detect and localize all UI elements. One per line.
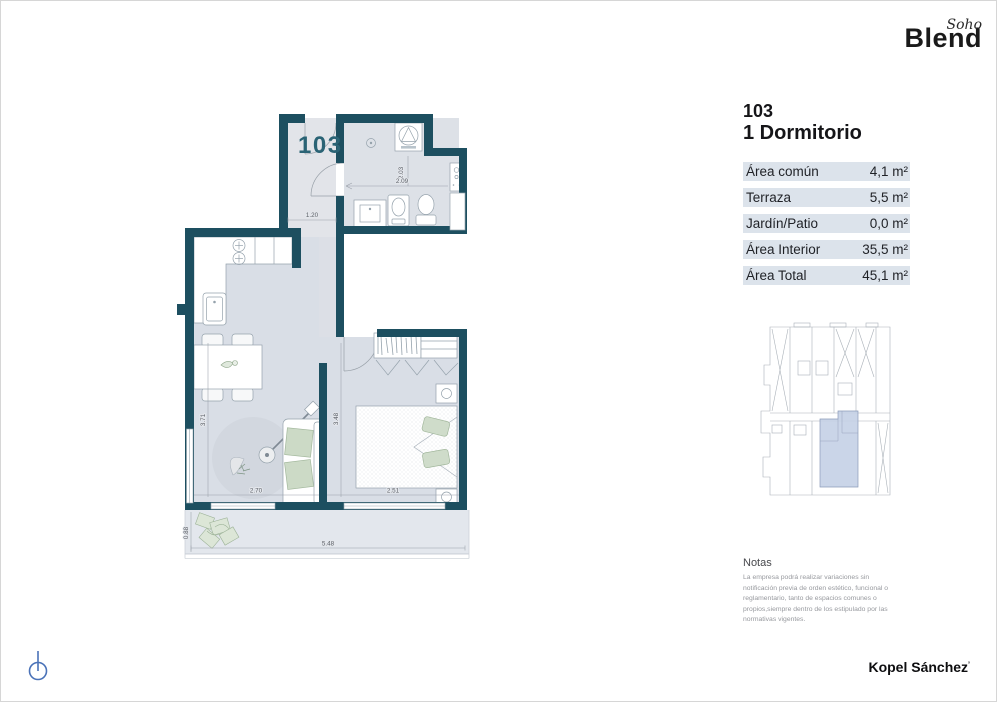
studio-logo: Kopel Sánchez’ — [868, 659, 970, 675]
nightstand-top — [436, 384, 457, 403]
studio-mark: ’ — [968, 661, 970, 668]
dim-bath-width: 2.09 — [396, 178, 409, 185]
table-row: Terraza 5,5 m² — [743, 188, 910, 207]
floor-plan: 1.20 2.03 2.09 3.71 2.70 3.48 2.51 0.88 … — [171, 101, 481, 571]
area-table: Área común 4,1 m² Terraza 5,5 m² Jardín/… — [743, 162, 910, 285]
area-value: 0,0 m² — [870, 216, 908, 231]
dim-terrace-depth: 0.88 — [183, 526, 190, 539]
dim-bedroom-width: 2.51 — [387, 488, 400, 495]
notes-body: La empresa podrá realizar variaciones si… — [743, 573, 899, 626]
bidet — [388, 195, 409, 226]
dim-terrace-width: 5.48 — [322, 541, 335, 548]
area-label: Área Interior — [746, 242, 820, 257]
area-label: Jardín/Patio — [746, 216, 818, 231]
notes-block: Notas La empresa podrá realizar variacio… — [743, 557, 899, 626]
sofa — [283, 419, 325, 507]
north-arrow-icon — [23, 645, 53, 685]
building-key-plan — [742, 321, 910, 503]
washing-machine — [395, 123, 422, 151]
plan-unit-label: 103 — [298, 132, 343, 159]
area-value: 35,5 m² — [862, 242, 908, 257]
area-label: Área Total — [746, 268, 807, 283]
shaft — [450, 193, 465, 230]
dim-living-depth: 3.71 — [200, 413, 207, 426]
table-row: Área común 4,1 m² — [743, 162, 910, 181]
bed — [356, 406, 457, 488]
brand-logo: Soho Blend — [872, 25, 982, 69]
logo-script-text: Soho — [947, 17, 982, 33]
area-value: 45,1 m² — [862, 268, 908, 283]
dim-bedroom-depth: 3.48 — [333, 412, 340, 425]
notes-title: Notas — [743, 557, 899, 569]
kitchen-sink — [203, 293, 226, 325]
bathroom-vanity — [354, 200, 386, 228]
table-row: Jardín/Patio 0,0 m² — [743, 214, 910, 233]
area-label: Terraza — [746, 190, 791, 205]
brochure-page: Soho Blend — [0, 0, 997, 702]
dim-living-width: 2.70 — [250, 488, 263, 495]
table-row: Área Total 45,1 m² — [743, 266, 910, 285]
area-value: 4,1 m² — [870, 164, 908, 179]
studio-name: Kopel Sánchez — [868, 659, 968, 675]
area-label: Área común — [746, 164, 819, 179]
table-row: Área Interior 35,5 m² — [743, 240, 910, 259]
dim-hall-width: 1.20 — [306, 212, 319, 219]
toilet — [416, 195, 436, 226]
unit-type: 1 Dormitorio — [743, 122, 910, 145]
keyplan-unit-highlight — [820, 411, 858, 487]
area-value: 5,5 m² — [870, 190, 908, 205]
unit-info: 103 1 Dormitorio Área común 4,1 m² Terra… — [743, 101, 910, 292]
unit-number: 103 — [743, 101, 910, 122]
